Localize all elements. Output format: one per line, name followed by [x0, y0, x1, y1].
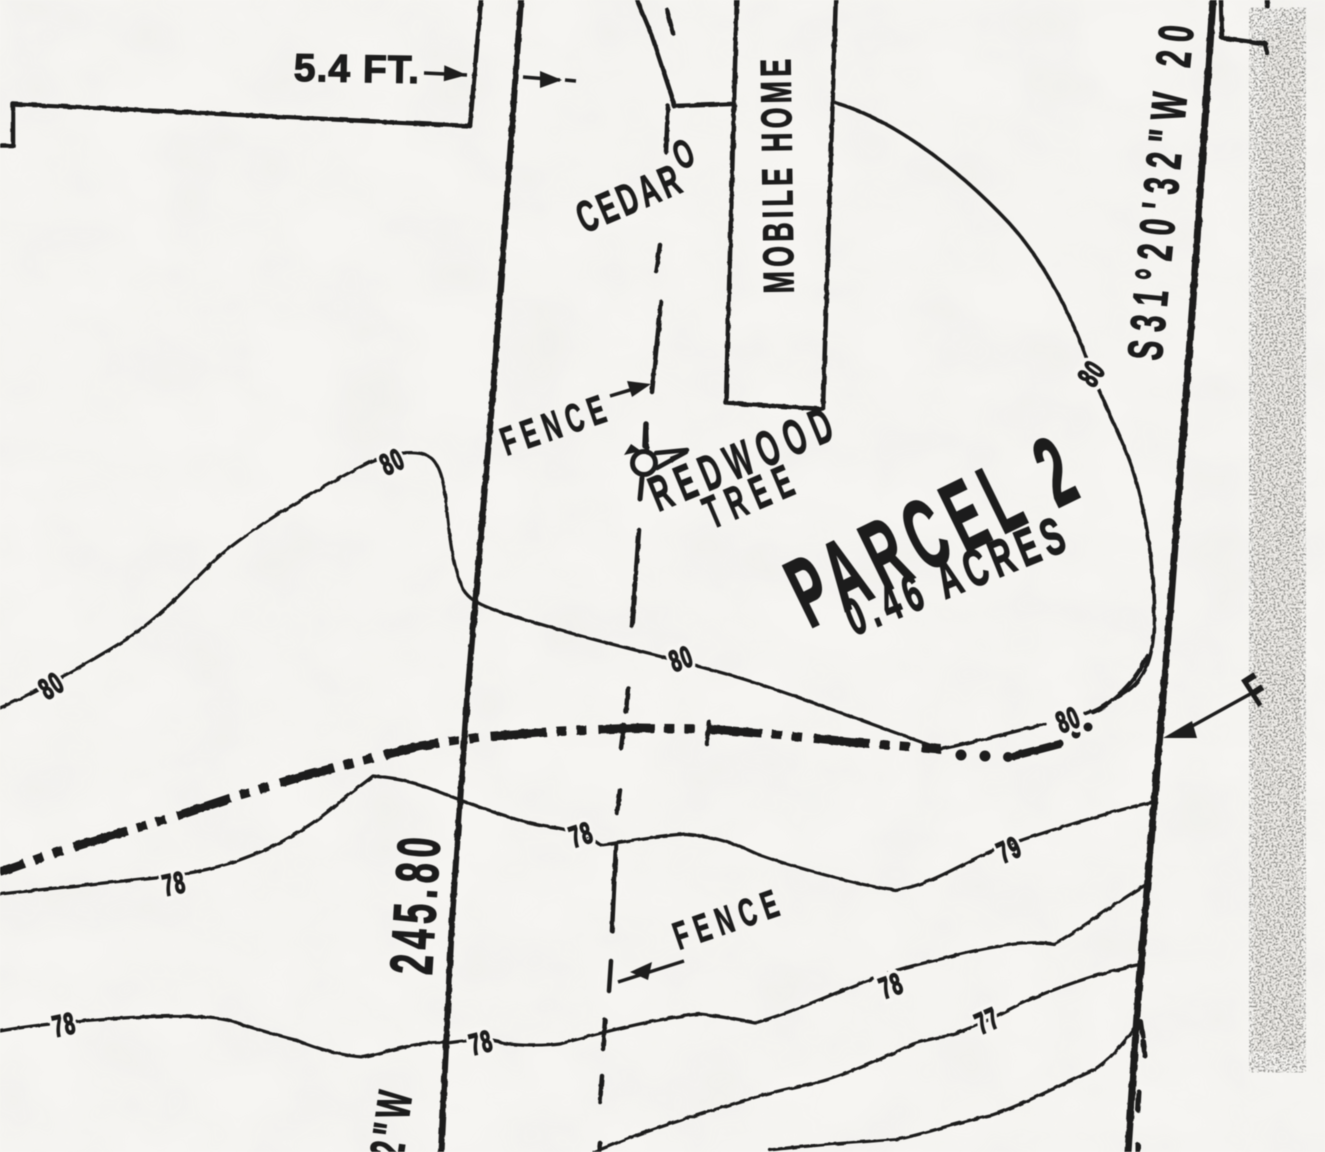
svg-text:MOBILE HOME: MOBILE HOME	[752, 54, 803, 293]
svg-text:245.80: 245.80	[378, 830, 453, 976]
svg-text:2"W: 2"W	[361, 1083, 424, 1152]
svg-text:5.4 FT.: 5.4 FT.	[293, 47, 420, 92]
